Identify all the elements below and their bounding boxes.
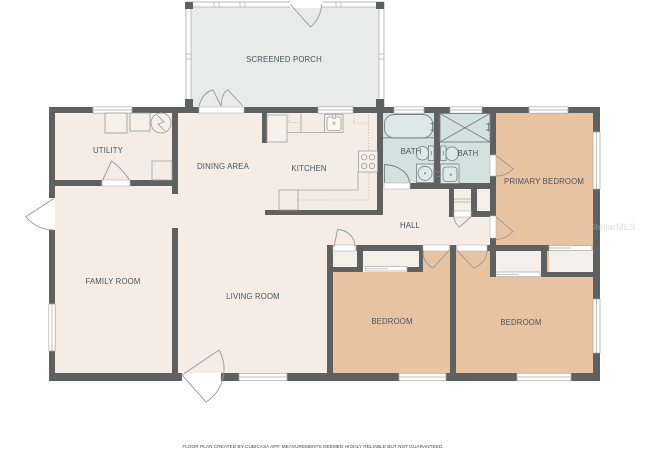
svg-text:FLOOR PLAN CREATED BY CUBICASA: FLOOR PLAN CREATED BY CUBICASA APP. MEAS… <box>182 444 443 450</box>
svg-text:BATH: BATH <box>401 147 422 156</box>
svg-text:KITCHEN: KITCHEN <box>291 164 326 173</box>
svg-text:HALL: HALL <box>400 221 421 230</box>
svg-text:DINING AREA: DINING AREA <box>197 162 250 171</box>
svg-text:BEDROOM: BEDROOM <box>500 318 541 327</box>
svg-text:SCREENED PORCH: SCREENED PORCH <box>246 55 322 64</box>
svg-text:FAMILY ROOM: FAMILY ROOM <box>85 277 140 286</box>
svg-text:LIVING ROOM: LIVING ROOM <box>226 292 280 301</box>
svg-text:PRIMARY BEDROOM: PRIMARY BEDROOM <box>504 177 584 186</box>
svg-text:UTILITY: UTILITY <box>93 146 124 155</box>
svg-text:BATH: BATH <box>458 149 479 158</box>
svg-text:StellarMLS: StellarMLS <box>589 222 635 233</box>
svg-text:BEDROOM: BEDROOM <box>371 317 412 326</box>
